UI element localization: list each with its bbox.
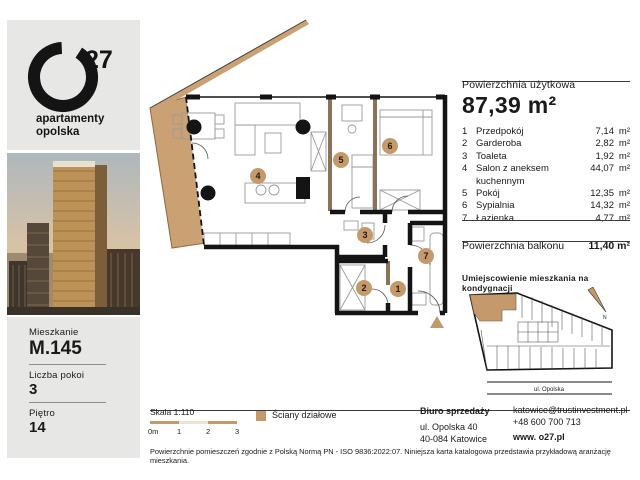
north-label: N <box>603 315 607 321</box>
usable-area-label: Powierzchnia użytkowa <box>462 79 575 91</box>
room-row: 4Salon z aneksem kuchennym44,07m² <box>462 163 630 188</box>
room-marker-4: 4 <box>250 168 266 184</box>
room-row: 1Przedpokój7,14m² <box>462 126 630 138</box>
room-row: 2Garderoba2,82m² <box>462 138 630 150</box>
room-marker-7: 7 <box>418 248 434 264</box>
divider <box>462 220 630 221</box>
office-title: Biuro sprzedaży <box>420 405 490 418</box>
floor-plan: 1 2 3 4 5 6 7 <box>140 5 470 345</box>
building-photo <box>7 153 140 315</box>
divider <box>29 402 106 403</box>
office-address-2: 40-084 Katowice <box>420 433 487 446</box>
scale-tick: 1 <box>177 427 181 436</box>
logo-number: 27 <box>85 46 113 74</box>
room-row: 6Sypialnia14,32m² <box>462 200 630 212</box>
scale-label: Skala 1:110 <box>150 407 194 417</box>
scale-tick: 3 <box>235 427 239 436</box>
room-row: 3Toaleta1,92m² <box>462 151 630 163</box>
street-label: ul. Opolska <box>534 387 565 393</box>
balcony-label: Powierzchnia balkonu <box>462 240 564 252</box>
logo-card: 27 apartamenty opolska <box>7 20 140 150</box>
room-marker-5: 5 <box>333 152 349 168</box>
rooms-label: Liczba pokoi <box>29 370 130 381</box>
rooms-count: 3 <box>29 381 130 398</box>
apartment-floor <box>186 97 445 313</box>
unit-number: M.145 <box>29 338 130 360</box>
floor-label: Piętro <box>29 408 130 419</box>
contact-web: www. o27.pl <box>513 431 565 444</box>
unit-card: Mieszkanie M.145 Liczba pokoi 3 Piętro 1… <box>7 317 140 458</box>
brand-name-line2: opolska <box>36 126 80 138</box>
o27-logo: 27 apartamenty opolska <box>7 20 140 150</box>
balcony-area-row: Powierzchnia balkonu 11,40 m² <box>462 240 630 252</box>
scale-bar <box>150 421 237 424</box>
unit-label: Mieszkanie <box>29 327 130 338</box>
photo-tower <box>53 161 95 307</box>
scale-tick: 2 <box>206 427 210 436</box>
entrance-marker <box>430 316 444 328</box>
usable-area-value: 87,39 m² <box>462 92 556 119</box>
room-marker-6: 6 <box>382 138 398 154</box>
disclaimer: Powierzchnie pomieszczeń zgodnie z Polsk… <box>150 447 636 465</box>
partition-legend-swatch <box>256 411 266 421</box>
room-marker-2: 2 <box>356 280 372 296</box>
partition-legend-label: Ściany działowe <box>272 409 337 422</box>
contact-phone: +48 600 700 713 <box>513 416 581 429</box>
floorplan-card: { "brand": {"logo_number":"27","name_lin… <box>0 0 640 480</box>
room-list: 1Przedpokój7,14m² 2Garderoba2,82m² 3Toal… <box>462 126 630 225</box>
divider <box>29 364 106 365</box>
brand-name-line1: apartamenty <box>36 113 105 125</box>
balcony-value: 11,40 m² <box>589 240 630 252</box>
key-plan: N ul. Opolska <box>462 286 630 398</box>
scale-tick: 0m <box>148 427 158 436</box>
north-arrow-icon <box>588 287 606 312</box>
floor-number: 14 <box>29 419 130 436</box>
room-marker-1: 1 <box>390 281 406 297</box>
room-row: 5Pokój12,35m² <box>462 188 630 200</box>
room-marker-3: 3 <box>357 227 373 243</box>
